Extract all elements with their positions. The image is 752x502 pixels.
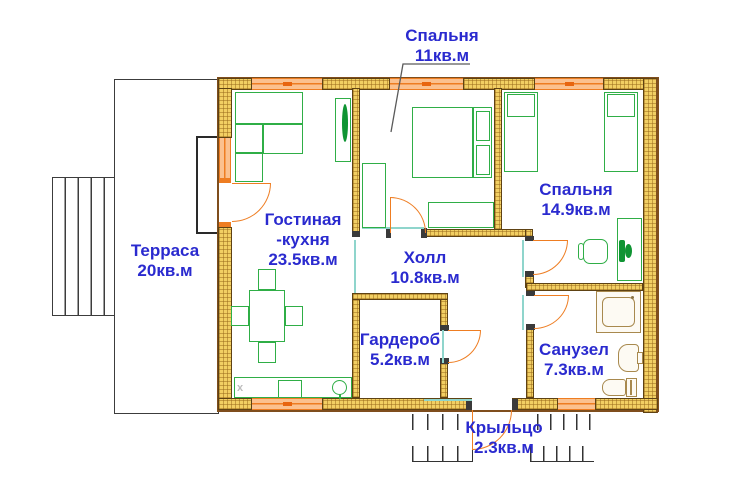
room-area: 7.3кв.м — [544, 360, 604, 379]
room-area: 2.3кв.м — [474, 438, 534, 457]
left-wall-segment — [218, 88, 232, 138]
wardrobe-cabinet — [362, 163, 386, 228]
bathroom-left-wall — [526, 329, 534, 398]
kitchen-sink — [332, 380, 347, 395]
wardrobe-right-wall — [440, 363, 448, 398]
window-dash — [283, 402, 292, 406]
stove — [278, 380, 302, 398]
room-name: Холл — [404, 248, 447, 267]
pillow — [476, 111, 490, 141]
dining-table — [249, 290, 285, 342]
label-hall: Холл 10.8кв.м — [390, 248, 459, 288]
shower-tray — [602, 297, 635, 327]
window-dash — [565, 82, 574, 86]
left-wall-window — [219, 138, 231, 179]
wardrobe-top-wall — [352, 293, 448, 300]
room-name: Санузел — [539, 340, 609, 359]
room-area: 11кв.м — [415, 46, 469, 65]
living-bedroom-partition — [352, 88, 360, 237]
shower-drain-dot — [631, 296, 634, 299]
opening-line — [522, 295, 524, 330]
right-wall — [643, 78, 658, 413]
terrace-stairs — [52, 177, 115, 316]
toilet-tank — [626, 378, 637, 397]
pillow — [507, 94, 535, 117]
label-wardrobe: Гардероб 5.2кв.м — [360, 330, 440, 370]
opening-line — [442, 330, 444, 363]
room-area: 14.9кв.м — [541, 200, 610, 219]
chair — [231, 306, 249, 326]
opening-line — [522, 240, 524, 277]
chair — [285, 306, 303, 326]
label-terrace: Терраса 20кв.м — [131, 241, 199, 281]
porch-steps-left-row1 — [412, 414, 473, 430]
bottom-wall-segment — [218, 398, 252, 410]
room-area: 23.5кв.м — [268, 250, 337, 269]
sink-basin — [618, 344, 639, 372]
wardrobe-left-wall — [352, 299, 360, 398]
bottom-wall-segment — [512, 398, 558, 410]
pillow — [476, 145, 490, 175]
bedroom-top-bottom-wall — [425, 229, 533, 237]
bedrooms-partition — [494, 88, 502, 230]
porch-steps-left-row2 — [412, 446, 473, 462]
sofa-top — [235, 92, 303, 124]
wall-cap — [352, 231, 360, 237]
pillow — [607, 94, 635, 117]
label-porch: Крыльцо 2.3кв.м — [465, 418, 542, 458]
chair — [258, 269, 276, 290]
sink-tap — [637, 352, 643, 364]
room-name: Терраса — [131, 241, 199, 260]
chair — [258, 342, 276, 363]
room-name: Гостиная — [265, 210, 342, 229]
terrace-bench — [196, 136, 219, 234]
room-name: -кухня — [276, 230, 329, 249]
monitor-screen — [625, 244, 632, 258]
opening-line — [424, 399, 472, 401]
room-area: 5.2кв.м — [370, 350, 430, 369]
porch-steps-right-row1 — [537, 414, 594, 430]
wall-cap — [512, 399, 518, 410]
left-wall-sill — [219, 178, 231, 183]
left-wall-sill — [219, 222, 231, 227]
dresser — [428, 202, 494, 228]
room-area: 20кв.м — [137, 261, 192, 280]
toilet-tank-line — [630, 380, 632, 395]
label-living: Гостиная -кухня 23.5кв.м — [265, 210, 342, 270]
bathroom-top-wall — [526, 283, 643, 291]
toilet-bowl — [602, 379, 626, 396]
room-name: Спальня — [405, 26, 478, 45]
kitchen-x-mark: x — [237, 383, 243, 394]
opening-line — [354, 240, 356, 293]
room-area: 10.8кв.м — [390, 268, 459, 287]
kitchen-sink-stem — [339, 394, 341, 399]
room-name: Спальня — [539, 180, 612, 199]
sofa-armrest — [263, 124, 303, 154]
room-name: Гардероб — [360, 330, 440, 349]
label-bedroom-top: Спальня 11кв.м — [405, 26, 478, 66]
desk-chair — [583, 239, 608, 264]
wardrobe-right-wall — [440, 299, 448, 327]
window-dash — [283, 82, 292, 86]
left-wall-segment — [218, 227, 232, 399]
bottom-wall-segment — [595, 398, 658, 410]
sofa-cushion-line — [235, 152, 263, 154]
desk-chair-back — [578, 243, 584, 260]
bathroom-window — [558, 398, 595, 410]
bed-headboard-line — [472, 107, 474, 178]
window-dash — [422, 82, 431, 86]
room-name: Крыльцо — [465, 418, 542, 437]
floor-plan: x Спальня 11кв.м Спальня 14.9кв.м Террас… — [0, 0, 752, 502]
tv-screen — [342, 104, 348, 142]
label-bathroom: Санузел 7.3кв.м — [539, 340, 609, 380]
label-bedroom-right: Спальня 14.9кв.м — [539, 180, 612, 220]
